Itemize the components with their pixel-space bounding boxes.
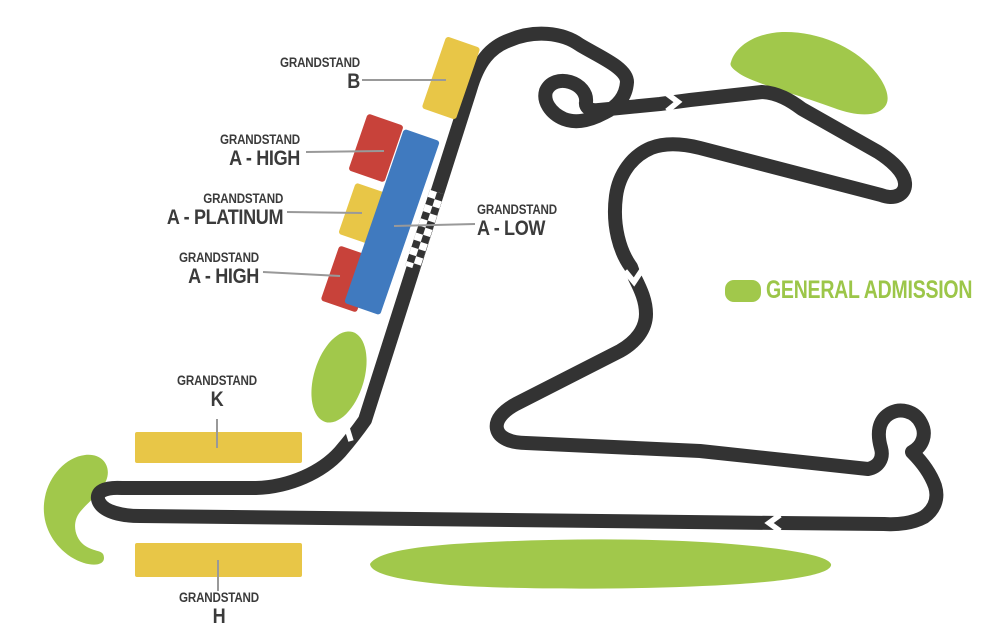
grandstand-a-high-lower-label: GRANDSTAND A - HIGH bbox=[179, 251, 259, 288]
grandstand-a-low-label: GRANDSTAND A - LOW bbox=[477, 203, 557, 240]
general-admission-zone-bottom[interactable] bbox=[370, 539, 831, 588]
grandstand-k-block[interactable] bbox=[135, 432, 302, 463]
grandstand-h-label-title: GRANDSTAND bbox=[150, 591, 288, 605]
circuit-map-canvas bbox=[0, 0, 1000, 631]
connector-a-platinum bbox=[287, 212, 362, 213]
general-admission-zone-top-right[interactable] bbox=[730, 32, 887, 114]
grandstand-a-high-lower-label-name: A - HIGH bbox=[179, 265, 259, 288]
grandstand-a-platinum-label-name: A - PLATINUM bbox=[167, 206, 283, 229]
connector-a-high-lower bbox=[263, 272, 340, 276]
grandstand-k-label-title: GRANDSTAND bbox=[148, 374, 286, 388]
circuit-seating-map: GRANDSTAND B GRANDSTAND A - HIGH GRANDST… bbox=[0, 0, 1000, 631]
grandstand-a-high-upper-label: GRANDSTAND A - HIGH bbox=[220, 133, 300, 170]
grandstand-b-label-name: B bbox=[280, 70, 360, 93]
grandstand-b-label-title: GRANDSTAND bbox=[280, 56, 360, 70]
grandstand-a-low-label-name: A - LOW bbox=[477, 217, 557, 240]
general-admission-legend-swatch bbox=[725, 280, 761, 302]
grandstand-a-high-upper-label-title: GRANDSTAND bbox=[220, 133, 300, 147]
grandstand-a-high-lower-label-title: GRANDSTAND bbox=[179, 251, 259, 265]
grandstand-a-platinum-label: GRANDSTAND A - PLATINUM bbox=[167, 192, 283, 229]
grandstand-a-high-upper-label-name: A - HIGH bbox=[220, 147, 300, 170]
grandstand-h-label-name: H bbox=[150, 605, 288, 628]
general-admission-legend-label: GENERAL ADMISSION bbox=[766, 276, 972, 305]
grandstand-h-label: GRANDSTAND H bbox=[150, 591, 288, 628]
grandstand-a-low-label-title: GRANDSTAND bbox=[477, 203, 557, 217]
grandstand-k-label: GRANDSTAND K bbox=[148, 374, 286, 411]
grandstand-k-label-name: K bbox=[148, 388, 286, 411]
grandstand-b-label: GRANDSTAND B bbox=[280, 56, 360, 93]
grandstand-a-platinum-label-title: GRANDSTAND bbox=[167, 192, 283, 206]
connector-a-high-upper bbox=[306, 151, 384, 152]
